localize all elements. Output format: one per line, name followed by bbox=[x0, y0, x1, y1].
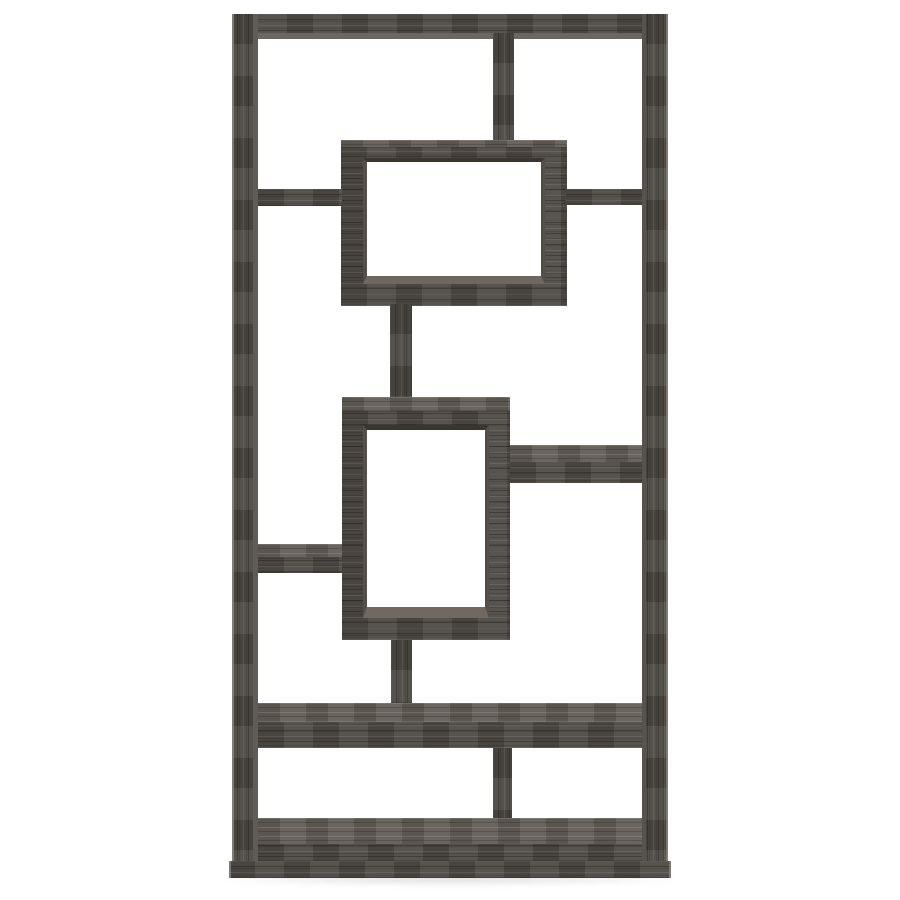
top-board-underside bbox=[258, 33, 642, 39]
middle-box bbox=[342, 397, 510, 640]
left-post-outer-edge bbox=[232, 14, 234, 861]
top-left-shelf bbox=[258, 189, 342, 206]
lower-shelf bbox=[258, 703, 642, 748]
middle-box-top-face bbox=[342, 397, 510, 411]
left-post bbox=[232, 14, 258, 861]
upper-stem bbox=[390, 304, 412, 399]
bottom-shelf bbox=[258, 818, 642, 861]
lower-stem bbox=[391, 640, 412, 704]
right-post-inner-face bbox=[642, 14, 646, 861]
top-board bbox=[232, 14, 668, 33]
upper-box-opening bbox=[363, 158, 545, 284]
upper-box-top-face bbox=[341, 140, 567, 147]
right-post bbox=[642, 14, 668, 861]
mid-left-shelf-top-face bbox=[258, 544, 342, 557]
lower-shelf-top-face bbox=[258, 703, 642, 722]
mid-right-shelf bbox=[510, 445, 642, 483]
mid-left-shelf bbox=[258, 544, 342, 573]
bottom-shelf-top-face bbox=[258, 818, 642, 844]
base bbox=[229, 861, 671, 878]
product-photo-bookcase bbox=[0, 0, 900, 900]
top-right-shelf bbox=[566, 189, 642, 205]
right-post-outer-edge bbox=[666, 14, 668, 861]
lower-divider bbox=[493, 748, 512, 820]
base-left-edge bbox=[229, 861, 231, 878]
base-right-edge bbox=[669, 861, 671, 878]
upper-box bbox=[341, 140, 567, 306]
top-divider bbox=[493, 33, 514, 142]
mid-right-shelf-top-face bbox=[510, 445, 642, 462]
middle-box-opening bbox=[363, 425, 489, 618]
